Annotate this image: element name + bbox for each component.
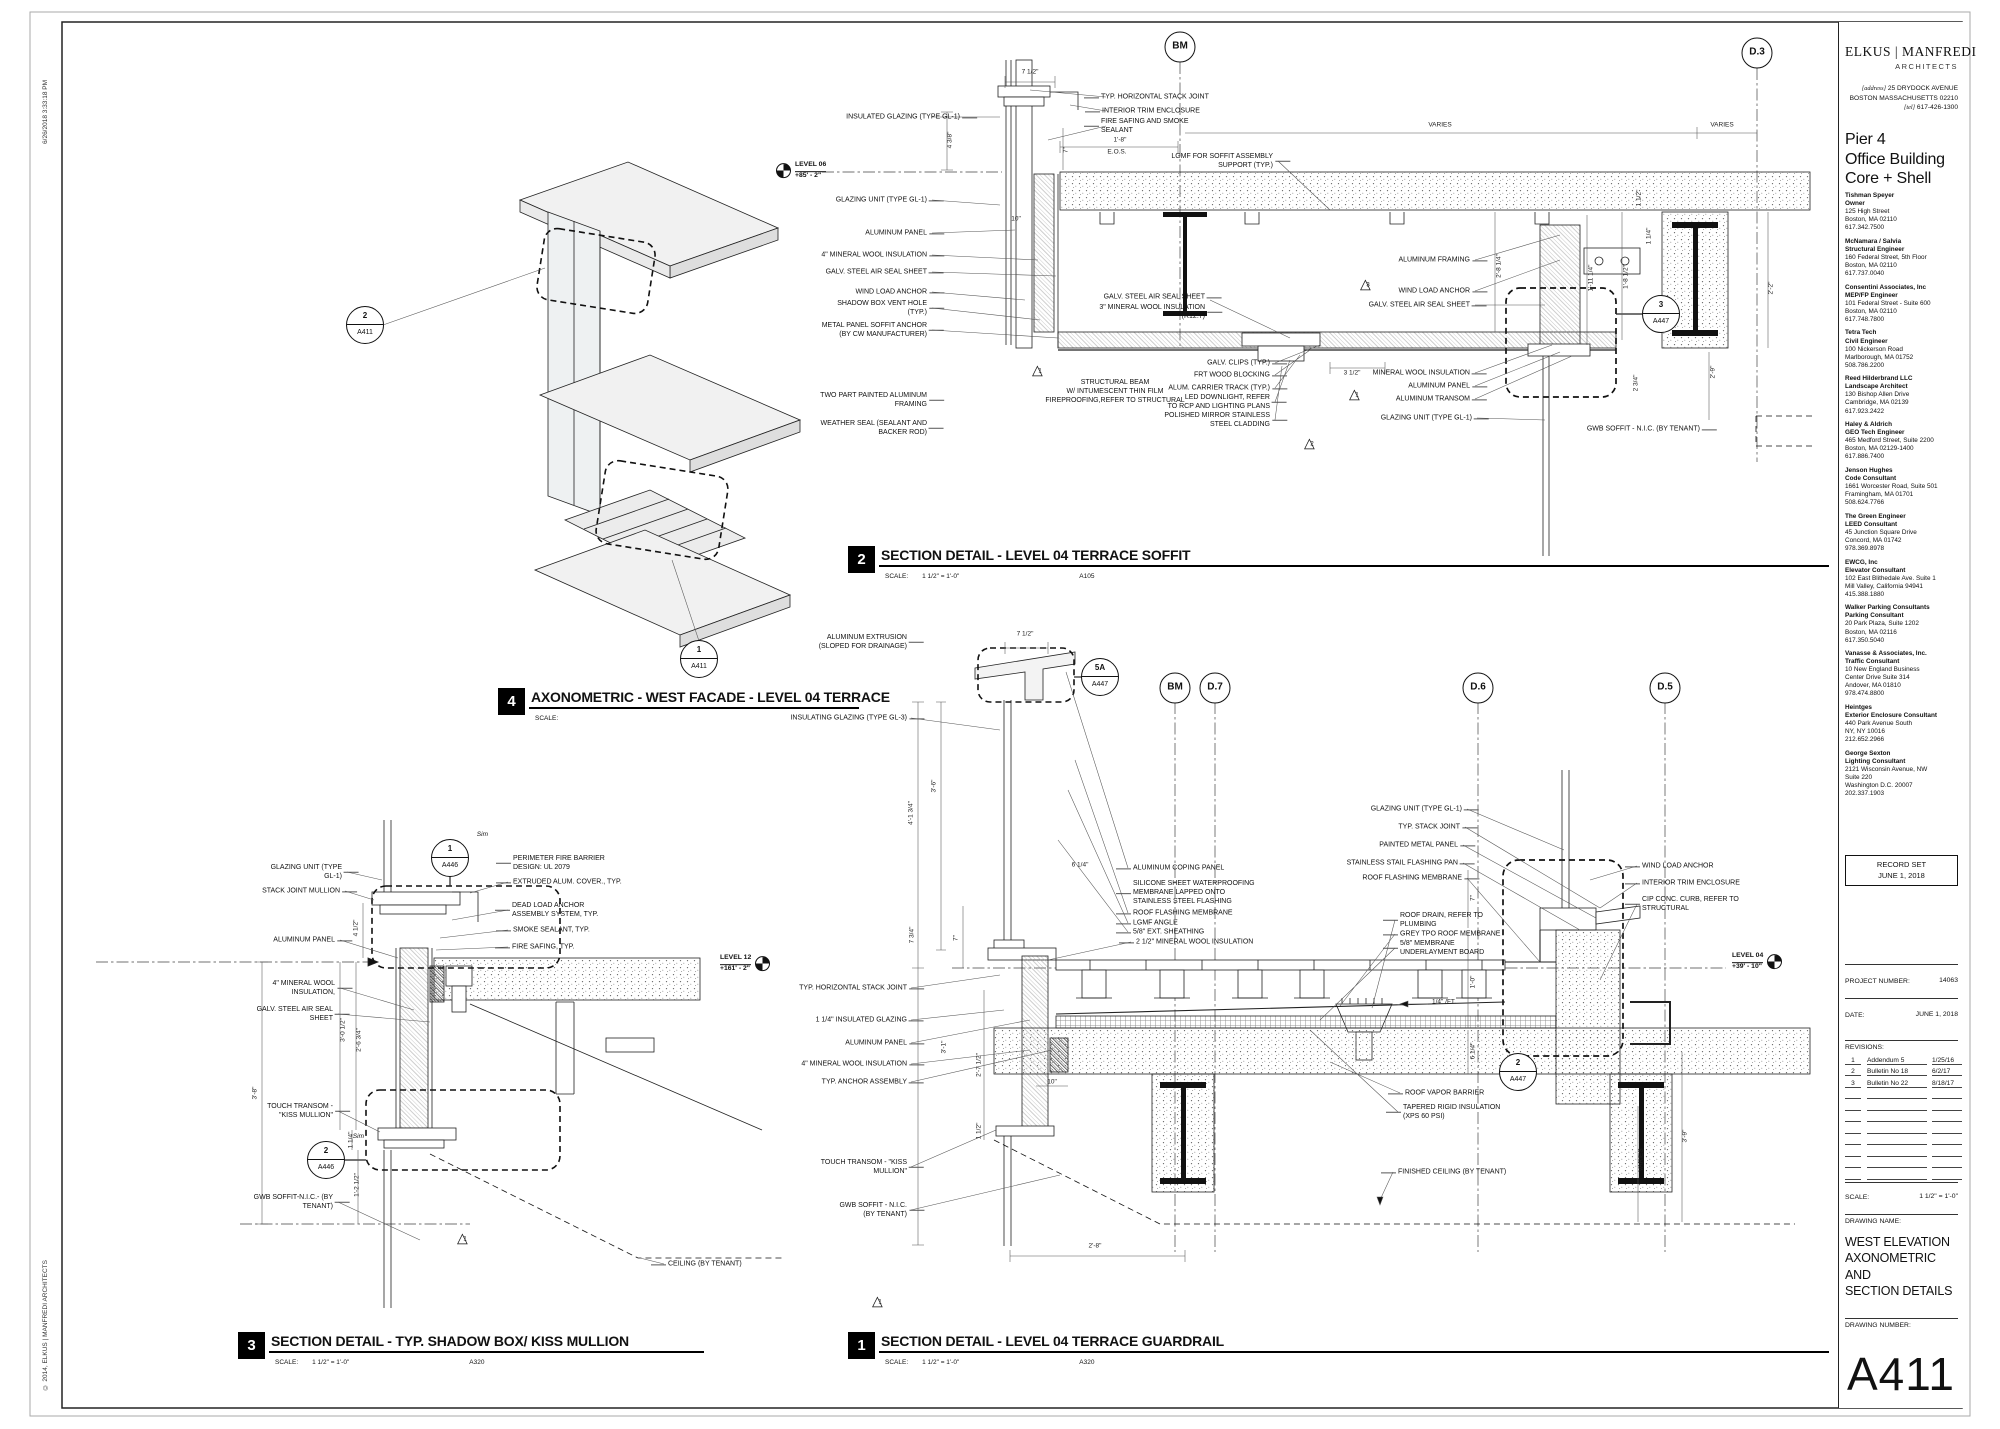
dimension-label: 1'-8" [1114,137,1127,146]
dimension-label: 1/4" /FT. [1432,999,1456,1008]
annotation-label: ROOF VAPOR BARRIER [1405,1088,1484,1097]
project-line1: Pier 4 [1845,130,1958,150]
consultant-line: 617.350.5040 [1845,637,1958,645]
consultant-line: Boston, MA 02110 [1845,216,1958,224]
address-line1: 25 DRYDOCK AVENUE [1888,85,1958,92]
dimension-label: 2'-8" [1089,1243,1102,1252]
revision-cell [1932,1091,1962,1099]
consultant-entry: Consentini Associates, IncMEP/FP Enginee… [1845,284,1958,324]
revision-cell [1867,1172,1927,1180]
consultant-line: Concord, MA 01742 [1845,537,1958,545]
revision-cell: Bulletin No 22 [1867,1080,1927,1088]
annotation-label: GLAZING UNIT (TYPE GL-1) [1371,804,1462,813]
annotation-label: GLAZING UNIT (TYPE GL-1) [836,195,927,204]
consultant-entry: Tishman SpeyerOwner125 High StreetBoston… [1845,192,1958,232]
annotation-label: LGMF FOR SOFFIT ASSEMBLY SUPPORT (TYP.) [1171,152,1273,170]
consultant-name: Consentini Associates, Inc [1845,284,1958,292]
dimension-label: VARIES [1710,122,1733,131]
consultant-line: 102 East Blithedale Ave. Suite 1 [1845,575,1958,583]
annotation-label: ALUMINUM COPING PANEL [1133,863,1224,872]
date-label: DATE: [1845,1012,1865,1019]
annotation-label: ALUMINUM PANEL [1408,381,1470,390]
detail-title-text: SECTION DETAIL - LEVEL 04 TERRACE GUARDR… [881,1332,1224,1350]
dimension-label: 1'-8 1/2" [1623,265,1632,289]
tel-label: [tel] [1904,104,1915,111]
detail-callout: 1A411 [680,640,718,678]
consultant-line: 465 Medford Street, Suite 2200 [1845,437,1958,445]
annotation-label: TYP. HORIZONTAL STACK JOINT [1101,92,1209,101]
revision-triangle-icon: △1 [1349,389,1365,404]
annotation-label: ALUMINUM FRAMING [1398,255,1470,264]
revision-cell: 3 [1845,1080,1861,1088]
detail-scale-value: 1 1/2" = 1'-0" [312,1359,349,1366]
annotation-label: GLAZING UNIT (TYPE GL-1) [271,863,342,881]
consultant-role: LEED Consultant [1845,521,1958,529]
consultant-line: 101 Federal Street - Suite 600 [1845,300,1958,308]
annotation-label: SHADOW BOX VENT HOLE (TYP.) [837,299,927,317]
revision-cell [1845,1126,1861,1134]
annotation-label: INTERIOR TRIM ENCLOSURE [1102,106,1200,115]
annotation-label: TYP. HORIZONTAL STACK JOINT [799,983,907,992]
revision-cell [1845,1137,1861,1145]
annotation-label: WIND LOAD ANCHOR [1642,861,1714,870]
consultant-role: Traffic Consultant [1845,658,1958,666]
annotation-label: 4" MINERAL WOOL INSULATION, [272,979,335,997]
annotation-label: ROOF DRAIN, REFER TO PLUMBING [1400,911,1483,929]
annotation-label: ALUMINUM PANEL [865,228,927,237]
detail-callout: 2A447 [1499,1053,1537,1091]
date-value: JUNE 1, 2018 [1916,1011,1958,1018]
record-set-line2: JUNE 1, 2018 [1846,870,1957,881]
consultant-line: 212.652.2966 [1845,736,1958,744]
grid-bubble: D.5 [1650,673,1681,704]
annotation-label: 2 1/2" MINERAL WOOL INSULATION [1136,937,1253,946]
revision-row: 1Addendum 51/25/16 [1845,1054,1958,1065]
dimension-label: 7 3/4" [909,927,918,944]
consultant-entry: Vanasse & Associates, Inc.Traffic Consul… [1845,650,1958,698]
detail-title-text: SECTION DETAIL - LEVEL 04 TERRACE SOFFIT [881,546,1190,564]
annotation-label: PERIMETER FIRE BARRIER DESIGN: UL 2079 [513,854,605,872]
consultant-role: Owner [1845,200,1958,208]
consultant-list: Tishman SpeyerOwner125 High StreetBoston… [1845,192,1958,804]
consultant-line: 617.737.0040 [1845,270,1958,278]
annotation-label: WIND LOAD ANCHOR [855,287,927,296]
consultant-name: Heintges [1845,704,1958,712]
annotation-label: CEILING (BY TENANT) [668,1259,742,1268]
revision-row [1845,1146,1958,1157]
detail-scale-row: SCALE:1 1/2" = 1'-0"A105 [885,572,1094,581]
scale-field: SCALE: 1 1/2" = 1'-0" [1845,1182,1958,1203]
annotation-label: ROOF FLASHING MEMBRANE [1133,908,1233,917]
annotation-label: INSULATING GLAZING (TYPE GL-3) [790,713,907,722]
drawing-number-label: DRAWING NUMBER: [1845,1318,1958,1329]
dimension-label: 10" [1047,1079,1057,1088]
record-set-box: RECORD SET JUNE 1, 2018 [1845,855,1958,886]
dimension-label: 3'-6" [931,780,940,793]
dimension-label: 6 1/4" [1072,862,1089,871]
address-label: [address] [1862,85,1886,92]
level-marker: LEVEL 12+161' - 2" [720,954,770,974]
consultant-line: Center Drive Suite 314 [1845,674,1958,682]
consultant-line: Boston, MA 02116 [1845,629,1958,637]
detail-callout: 5AA447 [1081,658,1119,696]
annotation-label: 1 1/4" INSULATED GLAZING [816,1015,907,1024]
dimension-label: 2'-9" [1710,366,1719,379]
annotation-label: TYP. ANCHOR ASSEMBLY [822,1077,907,1086]
consultant-entry: George SextonLighting Consultant2121 Wis… [1845,750,1958,798]
detail-callout: 2A411 [346,306,384,344]
dimension-label: 4 1/2" [353,920,362,937]
revision-cell [1845,1149,1861,1157]
drawing-number: A411 [1839,1347,1963,1401]
revision-cell [1932,1103,1962,1111]
consultant-entry: Haley & AldrichGEO Tech Engineer465 Medf… [1845,421,1958,461]
detail-number: 1 [848,1332,875,1359]
detail-ref: A320 [1079,1359,1094,1366]
dimension-label: 7" [1063,147,1072,153]
revision-cell [1845,1114,1861,1122]
consultant-role: Civil Engineer [1845,338,1958,346]
annotation-label: ALUMINUM EXTRUSION (SLOPED FOR DRAINAGE) [819,633,907,651]
firm-logo-sub: ARCHITECTS [1845,62,1958,71]
dimension-label: 2'-6 3/4" [356,1028,365,1052]
revision-cell [1845,1172,1861,1180]
revision-triangle-icon: △2 [1304,438,1320,453]
revision-row: 3Bulletin No 228/18/17 [1845,1077,1958,1088]
annotation-label: 5/8" EXT. SHEATHING [1133,927,1204,936]
revision-row [1845,1158,1958,1169]
annotation-label: GALV. STEEL AIR SEAL SHEET [257,1005,333,1023]
plot-stamp: 6/26/2018 3:33:18 PM [42,80,49,144]
consultant-line: 617.886.7400 [1845,453,1958,461]
detail-title-rule [529,707,859,709]
annotation-label: MINERAL WOOL INSULATION [1373,368,1470,377]
consultant-role: Lighting Consultant [1845,758,1958,766]
consultant-name: Vanasse & Associates, Inc. [1845,650,1958,658]
scale-value: 1 1/2" = 1'-0" [1919,1193,1958,1200]
consultant-name: McNamara / Salvia [1845,238,1958,246]
detail-title-text: SECTION DETAIL - TYP. SHADOW BOX/ KISS M… [271,1332,629,1350]
dimension-label: 1'-11 1/4" [1588,265,1597,292]
annotation-label: INTERIOR TRIM ENCLOSURE [1642,878,1740,887]
scale-label: SCALE: [1845,1194,1869,1201]
annotation-label: SMOKE SEALANT, TYP. [513,925,590,934]
grid-bubble: D.7 [1200,673,1231,704]
annotation-label: TOUCH TRANSOM - "KISS MULLION" [267,1102,333,1120]
dimension-label: VARIES [1428,122,1451,131]
dimension-label: 2'-8 1/4" [1496,254,1505,278]
project-number-label: PROJECT NUMBER: [1845,978,1910,985]
annotation-label: ALUMINUM PANEL [845,1038,907,1047]
consultant-line: 100 Nickerson Road [1845,346,1958,354]
consultant-line: 617.923.2422 [1845,408,1958,416]
level-marker: LEVEL 04+39' - 10" [1732,952,1782,972]
annotation-label: ALUMINUM PANEL [273,935,335,944]
annotation-label: STACK JOINT MULLION [262,886,340,895]
revision-cell [1932,1160,1962,1168]
consultant-line: Boston, MA 02110 [1845,262,1958,270]
consultant-line: 415.388.1880 [1845,591,1958,599]
detail-scale-label: SCALE: [885,573,908,580]
annotation-layer: 2A4111A4114AXONOMETRIC - WEST FACADE - L… [0,0,2000,1429]
project-number-value: 14063 [1939,977,1958,984]
drawing-name-label: DRAWING NAME: [1845,1214,1958,1225]
revision-row [1845,1169,1958,1180]
consultant-line: Andover, MA 01810 [1845,682,1958,690]
dimension-label: 7" [953,935,962,941]
annotation-label: PAINTED METAL PANEL [1379,840,1458,849]
annotation-label: CIP CONC. CURB, REFER TO STRUCTURAL [1642,895,1739,913]
annotation-label: FIRE SAFING AND SMOKE SEALANT [1101,117,1189,135]
consultant-role: Exterior Enclosure Consultant [1845,712,1958,720]
dimension-label: 2'-7 1/2" [976,1053,985,1077]
consultant-line: 160 Federal Street, 5th Floor [1845,254,1958,262]
consultant-entry: Tetra TechCivil Engineer100 Nickerson Ro… [1845,329,1958,369]
dimension-label: 6 1/4" [1470,1043,1479,1060]
dimension-label: E.O.S. [1107,149,1126,158]
drawing-sheet: .ln{stroke:#222;stroke-width:0.8;fill:no… [0,0,2000,1429]
revision-cell [1932,1172,1962,1180]
revision-cell [1845,1091,1861,1099]
revision-cell [1867,1149,1927,1157]
consultant-line: Cambridge, MA 02139 [1845,399,1958,407]
level-target-icon [755,957,770,972]
revision-cell [1932,1137,1962,1145]
revision-cell: 2 [1845,1068,1861,1076]
grid-bubble: D.3 [1742,38,1773,69]
grid-bubble: D.6 [1463,673,1494,704]
consultant-entry: The Green EngineerLEED Consultant45 Junc… [1845,513,1958,553]
annotation-label: GALV. STEEL AIR SEAL SHEET [1104,292,1205,301]
revision-row [1845,1089,1958,1100]
firm-address: [address] 25 DRYDOCK AVENUE BOSTON MASSA… [1845,84,1958,113]
consultant-line: 978.369.8978 [1845,545,1958,553]
consultant-line: 130 Bishop Allen Drive [1845,391,1958,399]
annotation-label: FIRE SAFING, TYP. [512,942,574,951]
project-name: Pier 4 Office Building Core + Shell [1845,130,1958,189]
detail-title-rule [879,565,1829,567]
detail-callout: 3A447 [1642,295,1680,333]
firm-logo: ELKUS | MANFREDI [1845,44,1958,60]
annotation-label: METAL PANEL SOFFIT ANCHOR (BY CW MANUFAC… [822,321,927,339]
consultant-line: 1661 Worcester Road, Suite 501 [1845,483,1958,491]
annotation-label: FRT WOOD BLOCKING [1194,370,1270,379]
consultant-entry: EWCG, IncElevator Consultant102 East Bli… [1845,559,1958,599]
consultant-line: 978.474.8800 [1845,690,1958,698]
annotation-label: INSULATED GLAZING (TYPE GL-1) [846,112,960,121]
dimension-label: 7" [1470,895,1479,901]
address-line2: BOSTON MASSACHUSETTS 02210 [1845,94,1958,103]
annotation-label: FINISHED CEILING (BY TENANT) [1398,1167,1506,1176]
level-marker: LEVEL 06+85' - 2" [776,161,826,181]
revision-triangle-icon: △3 [1360,279,1376,294]
dimension-label: 3'-0 1/2" [340,1018,349,1042]
detail-title-rule [879,1351,1829,1353]
project-line2: Office Building [1845,150,1958,170]
detail-number: 4 [498,688,525,715]
dimension-label: 4'-1 3/4" [908,801,917,825]
revision-cell: Addendum 5 [1867,1057,1927,1065]
dimension-label: 3'-1" [941,1041,950,1054]
consultant-name: Reed Hilderbrand LLC [1845,375,1958,383]
consultant-line: 508.786.2200 [1845,362,1958,370]
consultant-line: Mill Valley, California 94941 [1845,583,1958,591]
dimension-label: 1 1/2" [1636,190,1645,207]
consultant-entry: Reed Hilderbrand LLCLandscape Architect1… [1845,375,1958,415]
grid-bubble: BM [1160,673,1191,704]
detail-scale-row: SCALE:1 1/2" = 1'-0"A320 [885,1358,1094,1367]
consultant-line: 202.337.1903 [1845,790,1958,798]
dimension-label: 2 3/4" [1633,375,1642,392]
detail-callout: 1A446Sim [431,839,469,877]
revision-row [1845,1112,1958,1123]
revision-cell [1867,1137,1927,1145]
consultant-role: MEP/FP Engineer [1845,292,1958,300]
consultant-name: Walker Parking Consultants [1845,604,1958,612]
dimension-label: 3'-8" [252,1087,261,1100]
annotation-label: 3" MINERAL WOOL INSULATION (R12.7) [1099,303,1205,321]
annotation-label: TOUCH TRANSOM - "KISS MULLION" [821,1158,907,1176]
consultant-name: Haley & Aldrich [1845,421,1958,429]
annotation-label: WEATHER SEAL (SEALANT AND BACKER ROD) [821,419,927,437]
revision-cell [1867,1091,1927,1099]
consultant-line: 440 Park Avenue South [1845,720,1958,728]
dimension-label: 2'-2" [1768,282,1777,295]
revision-triangle-icon: △1 [872,1296,888,1311]
drawing-name: WEST ELEVATION AXONOMETRIC AND SECTION D… [1845,1234,1963,1299]
annotation-label: DEAD LOAD ANCHOR ASSEMBLY SYSTEM, TYP. [512,901,598,919]
revision-row: 2Bulletin No 186/2/17 [1845,1066,1958,1077]
revisions-header: REVISIONS: [1845,1040,1958,1051]
annotation-label: GALV. STEEL AIR SEAL SHEET [1369,300,1470,309]
tel-value: 617-426-1300 [1917,104,1958,111]
revision-triangle-icon: △1 [1032,365,1048,380]
revision-cell [1932,1114,1962,1122]
record-set-line1: RECORD SET [1846,859,1957,870]
annotation-label: GALV. CLIPS (TYP.) [1207,358,1270,367]
revision-cell [1932,1126,1962,1134]
annotation-label: 4" MINERAL WOOL INSULATION [821,250,927,259]
detail-scale-label: SCALE: [535,715,558,722]
consultant-name: The Green Engineer [1845,513,1958,521]
annotation-label: TYP. STACK JOINT [1398,822,1460,831]
consultant-line: 2121 Wisconsin Avenue, NW [1845,766,1958,774]
project-number-field: PROJECT NUMBER: 14063 [1845,964,1958,987]
consultant-name: Jenson Hughes [1845,467,1958,475]
dimension-label: 7 1/2" [1017,631,1034,640]
annotation-label: LGMF ANGLE [1133,918,1178,927]
revision-cell: 1 [1845,1057,1861,1065]
annotation-label: 5/8" MEMBRANE UNDERLAYMENT BOARD [1400,939,1484,957]
dimension-label: 3 1/2" [1344,370,1361,379]
annotation-label: GALV. STEEL AIR SEAL SHEET [826,267,927,276]
revision-cell [1932,1149,1962,1157]
consultant-role: Landscape Architect [1845,383,1958,391]
level-target-icon [776,164,791,179]
consultant-line: NY, NY 10016 [1845,728,1958,736]
annotation-label: WIND LOAD ANCHOR [1398,286,1470,295]
revision-cell [1867,1126,1927,1134]
dimension-label: 10" [1011,216,1021,225]
consultant-name: George Sexton [1845,750,1958,758]
consultant-role: Elevator Consultant [1845,567,1958,575]
revision-row [1845,1123,1958,1134]
level-target-icon [1767,955,1782,970]
dimension-label: 1'-2 1/2" [354,1173,363,1197]
consultant-line: 45 Junction Square Drive [1845,529,1958,537]
revision-triangle-icon: △1 [457,1233,473,1248]
revision-cell: 8/18/17 [1932,1080,1962,1088]
annotation-label: EXTRUDED ALUM. COVER., TYP. [513,877,622,886]
detail-ref: A105 [1079,573,1094,580]
detail-scale-value: 1 1/2" = 1'-0" [922,1359,959,1366]
dimension-label: 1 1/2" [976,1123,985,1140]
consultant-entry: HeintgesExterior Enclosure Consultant440… [1845,704,1958,744]
revision-row [1845,1135,1958,1146]
consultant-line: 125 High Street [1845,208,1958,216]
revision-cell [1867,1160,1927,1168]
consultant-line: Washington D.C. 20007 [1845,782,1958,790]
annotation-label: GREY TPO ROOF MEMBRANE [1400,929,1500,938]
revision-cell: 6/2/17 [1932,1068,1962,1076]
copyright-note: © 2014, ELKUS | MANFREDI ARCHITECTS [42,1260,49,1390]
consultant-entry: Walker Parking ConsultantsParking Consul… [1845,604,1958,644]
detail-number: 3 [238,1332,265,1359]
annotation-label: TWO PART PAINTED ALUMINUM FRAMING [820,391,927,409]
revision-cell [1867,1114,1927,1122]
annotation-label: SILICONE SHEET WATERPROOFING MEMBRANE LA… [1133,879,1255,907]
dimension-label: 1 1/4" [1646,228,1655,245]
detail-title-text: AXONOMETRIC - WEST FACADE - LEVEL 04 TER… [531,688,890,706]
consultant-role: GEO Tech Engineer [1845,429,1958,437]
consultant-line: 617.342.7500 [1845,224,1958,232]
consultant-line: 10 New England Business [1845,666,1958,674]
annotation-label: GLAZING UNIT (TYPE GL-1) [1381,413,1472,422]
consultant-entry: McNamara / SalviaStructural Engineer160 … [1845,238,1958,278]
dimension-label: VARIES [1638,1148,1647,1171]
consultant-line: 617.748.7800 [1845,316,1958,324]
revision-cell [1845,1103,1861,1111]
consultant-line: Suite 220 [1845,774,1958,782]
dimension-label: 7 1/2" [1022,69,1039,78]
consultant-entry: Jenson HughesCode Consultant1661 Worcest… [1845,467,1958,507]
revision-row [1845,1100,1958,1111]
annotation-label: ROOF FLASHING MEMBRANE [1362,873,1462,882]
date-field: DATE: JUNE 1, 2018 [1845,998,1958,1021]
annotation-label: 4" MINERAL WOOL INSULATION [801,1059,907,1068]
detail-number: 2 [848,546,875,573]
dimension-label: 1'-0" [1470,976,1479,989]
consultant-line: Boston, MA 02110 [1845,308,1958,316]
annotation-label: STAINLESS STAIL FLASHING PAN [1347,858,1458,867]
consultant-name: Tetra Tech [1845,329,1958,337]
consultant-line: Framingham, MA 01701 [1845,491,1958,499]
detail-scale-row: SCALE: [535,714,558,723]
annotation-label: GWB SOFFIT - N.I.C. (BY TENANT) [1587,424,1700,433]
consultant-line: Marlborough, MA 01752 [1845,354,1958,362]
detail-scale-value: 1 1/2" = 1'-0" [922,573,959,580]
title-block: ELKUS | MANFREDI ARCHITECTS [address] 25… [1838,22,1963,1408]
annotation-label: STRUCTURAL BEAM W/ INTUMESCENT THIN FILM… [1045,378,1184,406]
revision-cell: Bulletin No 18 [1867,1068,1927,1076]
consultant-name: Tishman Speyer [1845,192,1958,200]
detail-ref: A320 [469,1359,484,1366]
annotation-label: TAPERED RIGID INSULATION (XPS 60 PSI) [1403,1103,1500,1121]
detail-scale-label: SCALE: [885,1359,908,1366]
detail-scale-label: SCALE: [275,1359,298,1366]
project-line3: Core + Shell [1845,169,1958,189]
revision-cell [1845,1160,1861,1168]
